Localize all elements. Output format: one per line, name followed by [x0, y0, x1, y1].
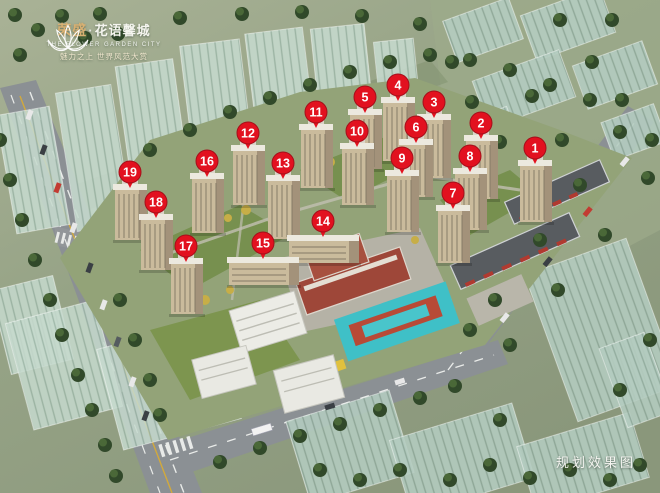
svg-text:11: 11 [309, 106, 322, 120]
svg-text:12: 12 [241, 127, 255, 141]
svg-text:17: 17 [179, 240, 193, 254]
aerial-planning-render: 4 5 3 11 2 6 10 12 1 [0, 0, 660, 493]
tower-building [436, 199, 472, 266]
svg-text:1: 1 [532, 142, 539, 156]
scene-canvas: 4 5 3 11 2 6 10 12 1 [0, 0, 660, 493]
svg-text:8: 8 [467, 150, 474, 164]
svg-text:10: 10 [350, 125, 364, 139]
midrise-building [227, 257, 301, 288]
tower-building [340, 137, 376, 208]
tower-building [299, 118, 335, 191]
tower-building [518, 154, 554, 225]
svg-text:18: 18 [149, 196, 163, 210]
caption-planning-render: 规划效果图 [556, 452, 636, 471]
svg-text:13: 13 [276, 157, 290, 171]
tower-building [169, 252, 205, 317]
tower-building [231, 139, 267, 208]
svg-text:14: 14 [316, 215, 330, 229]
svg-text:19: 19 [123, 166, 137, 180]
tower-building [190, 167, 226, 236]
svg-text:15: 15 [256, 237, 270, 251]
svg-text:3: 3 [431, 96, 438, 110]
svg-text:2: 2 [478, 117, 485, 131]
svg-text:6: 6 [413, 121, 420, 135]
tower-building [266, 169, 302, 242]
svg-text:9: 9 [399, 152, 406, 166]
svg-text:7: 7 [450, 187, 457, 201]
svg-text:16: 16 [200, 155, 214, 169]
svg-text:4: 4 [395, 79, 402, 93]
tower-building [385, 164, 421, 235]
svg-text:5: 5 [362, 91, 369, 105]
